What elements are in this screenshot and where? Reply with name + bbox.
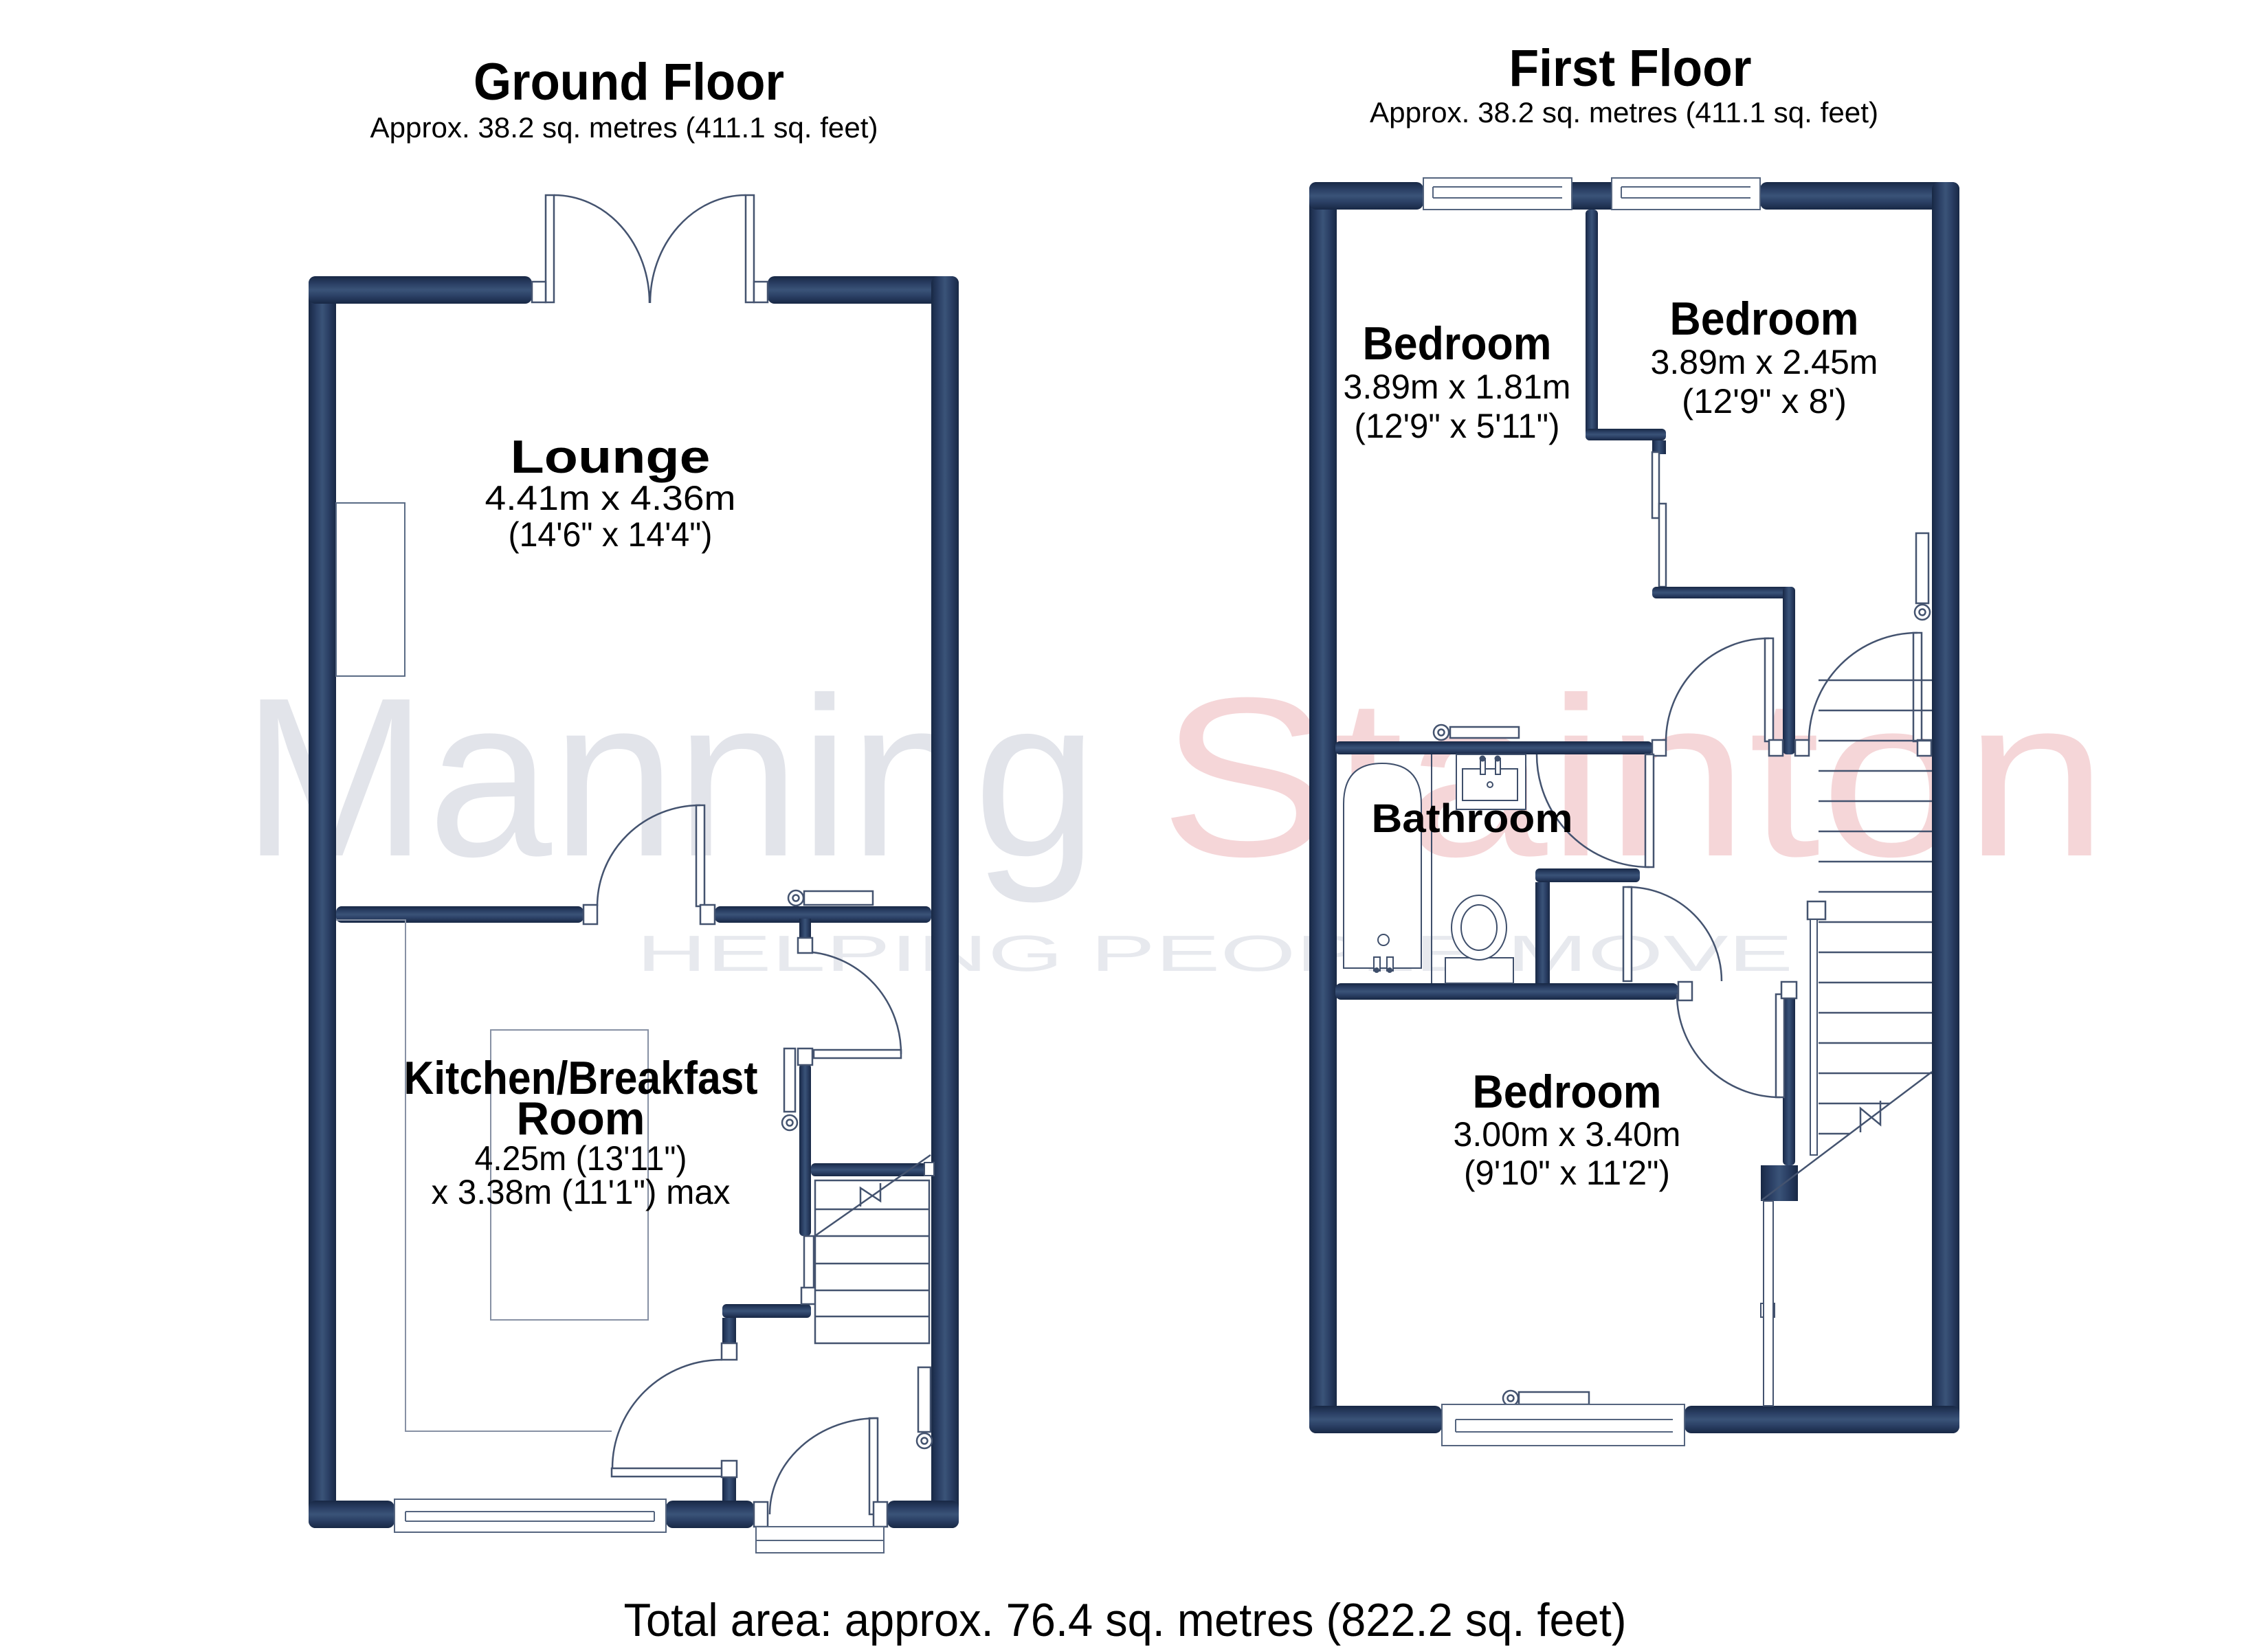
svg-text:(12'9" x 8'): (12'9" x 8') <box>1682 382 1847 420</box>
svg-text:(14'6" x 14'4"): (14'6" x 14'4") <box>509 515 713 554</box>
svg-text:3.89m x 2.45m: 3.89m x 2.45m <box>1651 343 1878 381</box>
svg-text:4.25m (13'11"): 4.25m (13'11") <box>475 1139 687 1178</box>
svg-text:Lounge: Lounge <box>511 431 711 483</box>
svg-text:3.00m x 3.40m: 3.00m x 3.40m <box>1454 1115 1681 1154</box>
svg-text:Bedroom: Bedroom <box>1363 317 1552 370</box>
svg-text:x 3.38m (11'1") max: x 3.38m (11'1") max <box>432 1173 731 1211</box>
svg-text:ManningStainton: ManningStainton <box>242 650 2108 905</box>
svg-text:3.89m x 1.81m: 3.89m x 1.81m <box>1344 368 1571 406</box>
svg-text:Total area: approx. 76.4 sq. m: Total area: approx. 76.4 sq. metres (822… <box>624 1594 1627 1646</box>
svg-text:Bedroom: Bedroom <box>1473 1066 1662 1118</box>
svg-text:(9'10" x 11'2"): (9'10" x 11'2") <box>1464 1154 1670 1192</box>
svg-text:First Floor: First Floor <box>1509 39 1752 98</box>
svg-text:Approx. 38.2 sq. metres (411.1: Approx. 38.2 sq. metres (411.1 sq. feet) <box>1370 96 1878 128</box>
svg-text:Bathroom: Bathroom <box>1372 796 1573 841</box>
svg-text:Room: Room <box>517 1092 645 1145</box>
svg-text:4.41m x 4.36m: 4.41m x 4.36m <box>485 479 736 517</box>
svg-text:Bedroom: Bedroom <box>1670 293 1859 345</box>
svg-text:(12'9" x 5'11"): (12'9" x 5'11") <box>1355 407 1560 445</box>
svg-text:Ground Floor: Ground Floor <box>474 53 784 111</box>
svg-text:Approx. 38.2 sq. metres (411.1: Approx. 38.2 sq. metres (411.1 sq. feet) <box>370 111 878 144</box>
